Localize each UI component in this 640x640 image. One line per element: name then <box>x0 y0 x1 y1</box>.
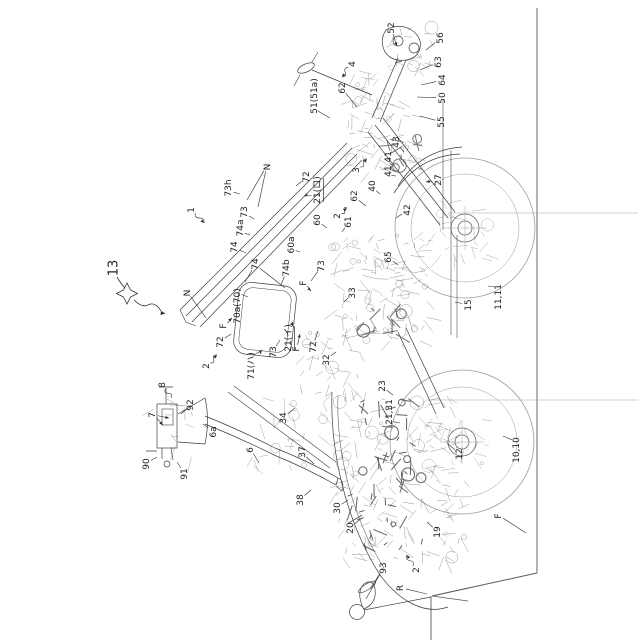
svg-text:91: 91 <box>180 468 190 479</box>
patent-drawing: 131222345256636450556251(51a)4341,414062… <box>0 0 640 640</box>
ref-label-73h: 73h <box>224 179 234 196</box>
ref-label-50: 50 <box>438 92 448 104</box>
svg-text:30: 30 <box>333 502 343 514</box>
leader-line <box>427 522 433 527</box>
assembly-13-marker <box>117 277 166 315</box>
leader-line <box>239 250 246 253</box>
ref-label-70a(70): 70a(70) <box>233 288 243 323</box>
leader-arrowhead <box>159 422 163 425</box>
svg-text:R: R <box>396 585 406 591</box>
leader-arrowhead <box>407 555 410 559</box>
leader-line <box>406 589 427 594</box>
svg-text:8: 8 <box>158 382 168 388</box>
leader-line <box>177 462 181 468</box>
svg-text:27: 27 <box>434 174 444 185</box>
ref-label-10,10: 10,10 <box>512 437 522 463</box>
ref-label-55: 55 <box>437 116 447 127</box>
ref-label-41,41: 41,41 <box>384 151 394 177</box>
svg-text:43: 43 <box>392 136 402 147</box>
svg-text:F: F <box>299 280 309 285</box>
svg-text:93: 93 <box>379 562 389 573</box>
leader-line <box>225 334 231 338</box>
svg-text:15: 15 <box>464 299 474 310</box>
ref-label-23: 23 <box>378 380 388 391</box>
ref-label-65: 65 <box>384 251 394 262</box>
ref-label-72: 72 <box>302 171 312 182</box>
svg-text:74b: 74b <box>282 259 292 276</box>
svg-text:2: 2 <box>333 213 343 219</box>
leader-line <box>276 340 280 346</box>
ref-label-74: 74 <box>230 241 240 253</box>
leader-line <box>396 214 402 218</box>
svg-text:41,41: 41,41 <box>384 151 394 177</box>
svg-text:55: 55 <box>437 116 447 127</box>
ref-label-56: 56 <box>436 32 446 44</box>
ref-label-12: 12 <box>455 448 465 459</box>
leader-line <box>421 82 436 85</box>
reference-labels: 131222345256636450556251(51a)4341,414062… <box>107 22 526 599</box>
leader-arrowhead <box>426 180 430 183</box>
svg-text:21,31: 21,31 <box>385 399 395 425</box>
front-wheel <box>395 158 535 298</box>
ref-label-6: 6 <box>246 447 256 453</box>
leader-arrowhead <box>307 288 311 291</box>
svg-text:N: N <box>263 164 273 171</box>
ref-label-64: 64 <box>438 74 448 86</box>
leader-line <box>447 443 455 449</box>
leader-line <box>503 518 526 533</box>
svg-text:2: 2 <box>202 363 212 369</box>
ref-label-33: 33 <box>348 287 358 298</box>
svg-text:4: 4 <box>348 61 358 67</box>
leader-line <box>191 296 206 318</box>
ref-label-73: 73 <box>269 346 279 357</box>
ref-label-72: 72 <box>216 336 226 347</box>
leader-line <box>281 277 284 285</box>
svg-text:F: F <box>292 346 302 351</box>
ref-label-74b: 74b <box>282 259 292 276</box>
svg-text:73h: 73h <box>224 179 234 196</box>
ref-label-3: 3 <box>352 167 362 173</box>
svg-text:52: 52 <box>387 22 397 33</box>
ref-label-13: 13 <box>107 260 122 277</box>
ref-label-2: 2 <box>412 567 422 573</box>
leader-arrowhead <box>304 193 307 196</box>
svg-text:32: 32 <box>322 354 332 365</box>
svg-text:F: F <box>494 513 504 518</box>
svg-text:65: 65 <box>384 251 394 262</box>
svg-text:92: 92 <box>186 399 196 410</box>
svg-text:63: 63 <box>434 56 444 67</box>
ref-label-63: 63 <box>434 56 444 67</box>
ref-label-72: 72 <box>309 341 319 352</box>
leader-line <box>315 331 318 341</box>
ref-label-19: 19 <box>433 526 443 538</box>
ref-label-90: 90 <box>142 458 152 470</box>
ref-label-8: 8 <box>158 382 168 388</box>
svg-text:50: 50 <box>438 92 448 104</box>
ref-label-74a: 74a <box>236 220 246 237</box>
svg-text:62: 62 <box>350 190 360 201</box>
ref-label-71(ハ): 71(ハ) <box>247 352 257 379</box>
ref-label-74: 74 <box>251 258 261 270</box>
ref-label-32: 32 <box>322 354 332 365</box>
ref-label-F: F <box>219 323 229 328</box>
ref-label-30: 30 <box>333 502 343 514</box>
ref-label-43: 43 <box>392 136 402 147</box>
svg-text:60: 60 <box>313 214 323 226</box>
ref-label-F: F <box>494 513 504 518</box>
svg-text:21(ロ): 21(ロ) <box>313 176 323 203</box>
svg-text:73: 73 <box>317 260 327 271</box>
leader-line <box>488 286 494 287</box>
leader-line <box>346 93 357 107</box>
leader-line <box>417 97 436 98</box>
ref-label-R: R <box>396 585 406 591</box>
svg-text:33: 33 <box>348 287 358 298</box>
svg-text:2: 2 <box>412 567 422 573</box>
ref-label-40: 40 <box>368 180 378 192</box>
patent-figure-page: 131222345256636450556251(51a)4341,414062… <box>0 0 640 640</box>
ref-label-15: 15 <box>464 299 474 310</box>
leader-line <box>503 436 512 440</box>
ref-label-37: 37 <box>298 446 308 457</box>
svg-text:12: 12 <box>455 448 465 459</box>
svg-text:74a: 74a <box>236 220 246 237</box>
leader-arrowhead <box>200 219 204 223</box>
svg-text:62: 62 <box>338 82 348 93</box>
leader-line <box>288 408 295 414</box>
ref-label-42: 42 <box>403 204 413 215</box>
ref-label-6a: 6a <box>209 426 219 437</box>
svg-text:71(ハ): 71(ハ) <box>247 352 257 379</box>
svg-text:23: 23 <box>378 380 388 391</box>
svg-text:F: F <box>219 323 229 328</box>
leader-arrowhead <box>165 416 169 419</box>
leader-line <box>258 171 266 207</box>
ref-label-52: 52 <box>387 22 397 33</box>
ref-label-N: N <box>263 164 273 171</box>
leader-line <box>420 116 435 120</box>
ref-label-38: 38 <box>296 494 306 506</box>
svg-text:6a: 6a <box>209 426 219 437</box>
leader-line <box>420 65 433 70</box>
ref-label-60a: 60a <box>287 237 297 254</box>
ref-label-4: 4 <box>348 61 358 67</box>
ref-label-21(ロ): 21(ロ) <box>313 176 323 203</box>
svg-text:42: 42 <box>403 204 413 215</box>
ref-label-61: 61 <box>344 216 354 227</box>
vehicle-structure <box>146 26 462 619</box>
leader-line <box>331 352 336 356</box>
leader-line <box>311 272 318 281</box>
ref-label-92: 92 <box>186 399 196 410</box>
ref-label-1: 1 <box>187 207 197 213</box>
svg-text:73: 73 <box>269 346 279 357</box>
ref-label-60: 60 <box>313 214 323 226</box>
ref-label-93: 93 <box>379 562 389 573</box>
ref-label-11,11: 11,11 <box>494 284 504 310</box>
svg-text:38: 38 <box>296 494 306 506</box>
svg-text:56: 56 <box>436 32 446 44</box>
svg-text:N: N <box>183 290 193 297</box>
svg-text:3: 3 <box>352 167 362 173</box>
ref-label-27: 27 <box>434 174 444 185</box>
svg-text:51(51a): 51(51a) <box>310 78 320 113</box>
ref-label-62: 62 <box>350 190 360 201</box>
leader-line <box>359 200 366 206</box>
svg-text:73: 73 <box>240 206 250 217</box>
leader-line <box>247 171 264 200</box>
ref-label-2: 2 <box>333 213 343 219</box>
leader-line <box>426 42 435 50</box>
leader-line <box>233 192 240 194</box>
ref-label-7: 7 <box>148 412 158 418</box>
leader-line <box>245 270 252 282</box>
svg-text:13: 13 <box>107 260 122 277</box>
leader-arrowhead <box>228 318 232 321</box>
ref-label-73: 73 <box>240 206 250 217</box>
ref-label-F: F <box>299 280 309 285</box>
svg-text:40: 40 <box>368 180 378 192</box>
svg-text:61: 61 <box>344 216 354 227</box>
ref-label-91: 91 <box>180 468 190 479</box>
svg-text:37: 37 <box>298 446 308 457</box>
svg-text:11,11: 11,11 <box>494 284 504 310</box>
svg-text:60a: 60a <box>287 237 297 254</box>
leader-line <box>296 181 302 186</box>
ref-label-21,31: 21,31 <box>385 399 395 425</box>
svg-text:72: 72 <box>302 171 312 182</box>
svg-text:10,10: 10,10 <box>512 437 522 463</box>
svg-text:1: 1 <box>187 207 197 213</box>
svg-text:70a(70): 70a(70) <box>233 288 243 323</box>
svg-text:72: 72 <box>309 341 319 352</box>
leader-line <box>306 457 314 464</box>
leader-line <box>455 302 462 303</box>
svg-text:72: 72 <box>216 336 226 347</box>
svg-text:7: 7 <box>148 412 158 418</box>
svg-text:64: 64 <box>438 74 448 86</box>
ref-label-51(51a): 51(51a) <box>310 78 320 113</box>
svg-text:74: 74 <box>230 241 240 253</box>
svg-text:19: 19 <box>433 526 443 538</box>
leader-line <box>304 490 311 496</box>
ref-label-62: 62 <box>338 82 348 93</box>
ref-label-73: 73 <box>317 260 327 271</box>
svg-text:6: 6 <box>246 447 256 453</box>
ref-label-N: N <box>183 290 193 297</box>
ref-label-2: 2 <box>202 363 212 369</box>
svg-text:74: 74 <box>251 258 261 270</box>
leader-line <box>366 574 380 599</box>
svg-text:90: 90 <box>142 458 152 470</box>
ref-label-F: F <box>292 346 302 351</box>
